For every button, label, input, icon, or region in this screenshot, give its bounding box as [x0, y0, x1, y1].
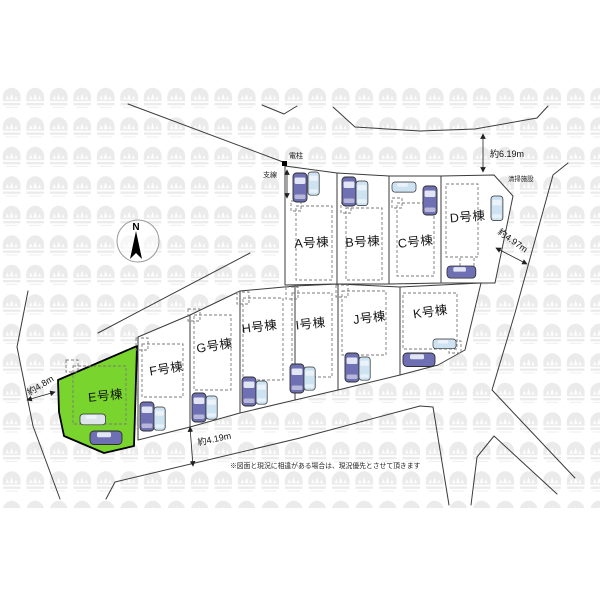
- car-lot-k-dark: [403, 353, 435, 367]
- disclaimer-note: ※図面と現況に相違がある場合は、現況優先とさせて頂きます: [230, 461, 421, 470]
- lot-a-label: A号棟: [294, 234, 330, 251]
- dimension-north-road: 約6.19m: [490, 148, 524, 159]
- compass: N: [117, 220, 159, 262]
- car-lot-h-light: [256, 381, 267, 404]
- car-lot-e-dark: [90, 431, 122, 445]
- utility-pole-icon: [282, 161, 287, 166]
- lot-b-label: B号棟: [345, 233, 381, 250]
- car-lot-d-light: [491, 196, 503, 221]
- lot-i-label: I号棟: [295, 314, 326, 332]
- site-plan-image: 電柱 支線 清掃施設 約6.19m 約4.97m 約4.19m 約4.8m A号…: [0, 0, 600, 600]
- car-lot-c-dark: [423, 186, 437, 215]
- car-lot-f-light: [154, 407, 165, 430]
- car-lot-g-dark: [192, 393, 206, 422]
- car-lot-i-dark: [290, 364, 304, 393]
- site-plan-canvas: 電柱 支線 清掃施設 約6.19m 約4.97m 約4.19m 約4.8m A号…: [0, 0, 600, 600]
- car-lot-g-light: [206, 396, 217, 419]
- lot-d-label: D号棟: [449, 207, 486, 225]
- utility-pole-label: 電柱: [289, 151, 303, 160]
- guy-wire-label: 支線: [263, 170, 277, 179]
- car-lot-j-dark: [345, 353, 359, 382]
- car-lot-i-light: [304, 367, 315, 390]
- car-lot-b-dark: [342, 177, 356, 206]
- car-lot-f-dark: [140, 402, 154, 431]
- car-lot-e-gray: [80, 414, 106, 425]
- car-lot-h-dark: [242, 377, 256, 406]
- car-lot-a-dark: [293, 173, 307, 202]
- car-lot-b-light: [356, 181, 368, 206]
- car-lot-k-light: [433, 339, 456, 349]
- car-lot-d-dark: [447, 266, 476, 278]
- car-lot-c-light: [392, 182, 416, 192]
- car-lot-j-light: [359, 357, 370, 380]
- car-lot-a-light: [308, 172, 319, 195]
- sanitation-facility-label: 清掃施設: [508, 174, 534, 183]
